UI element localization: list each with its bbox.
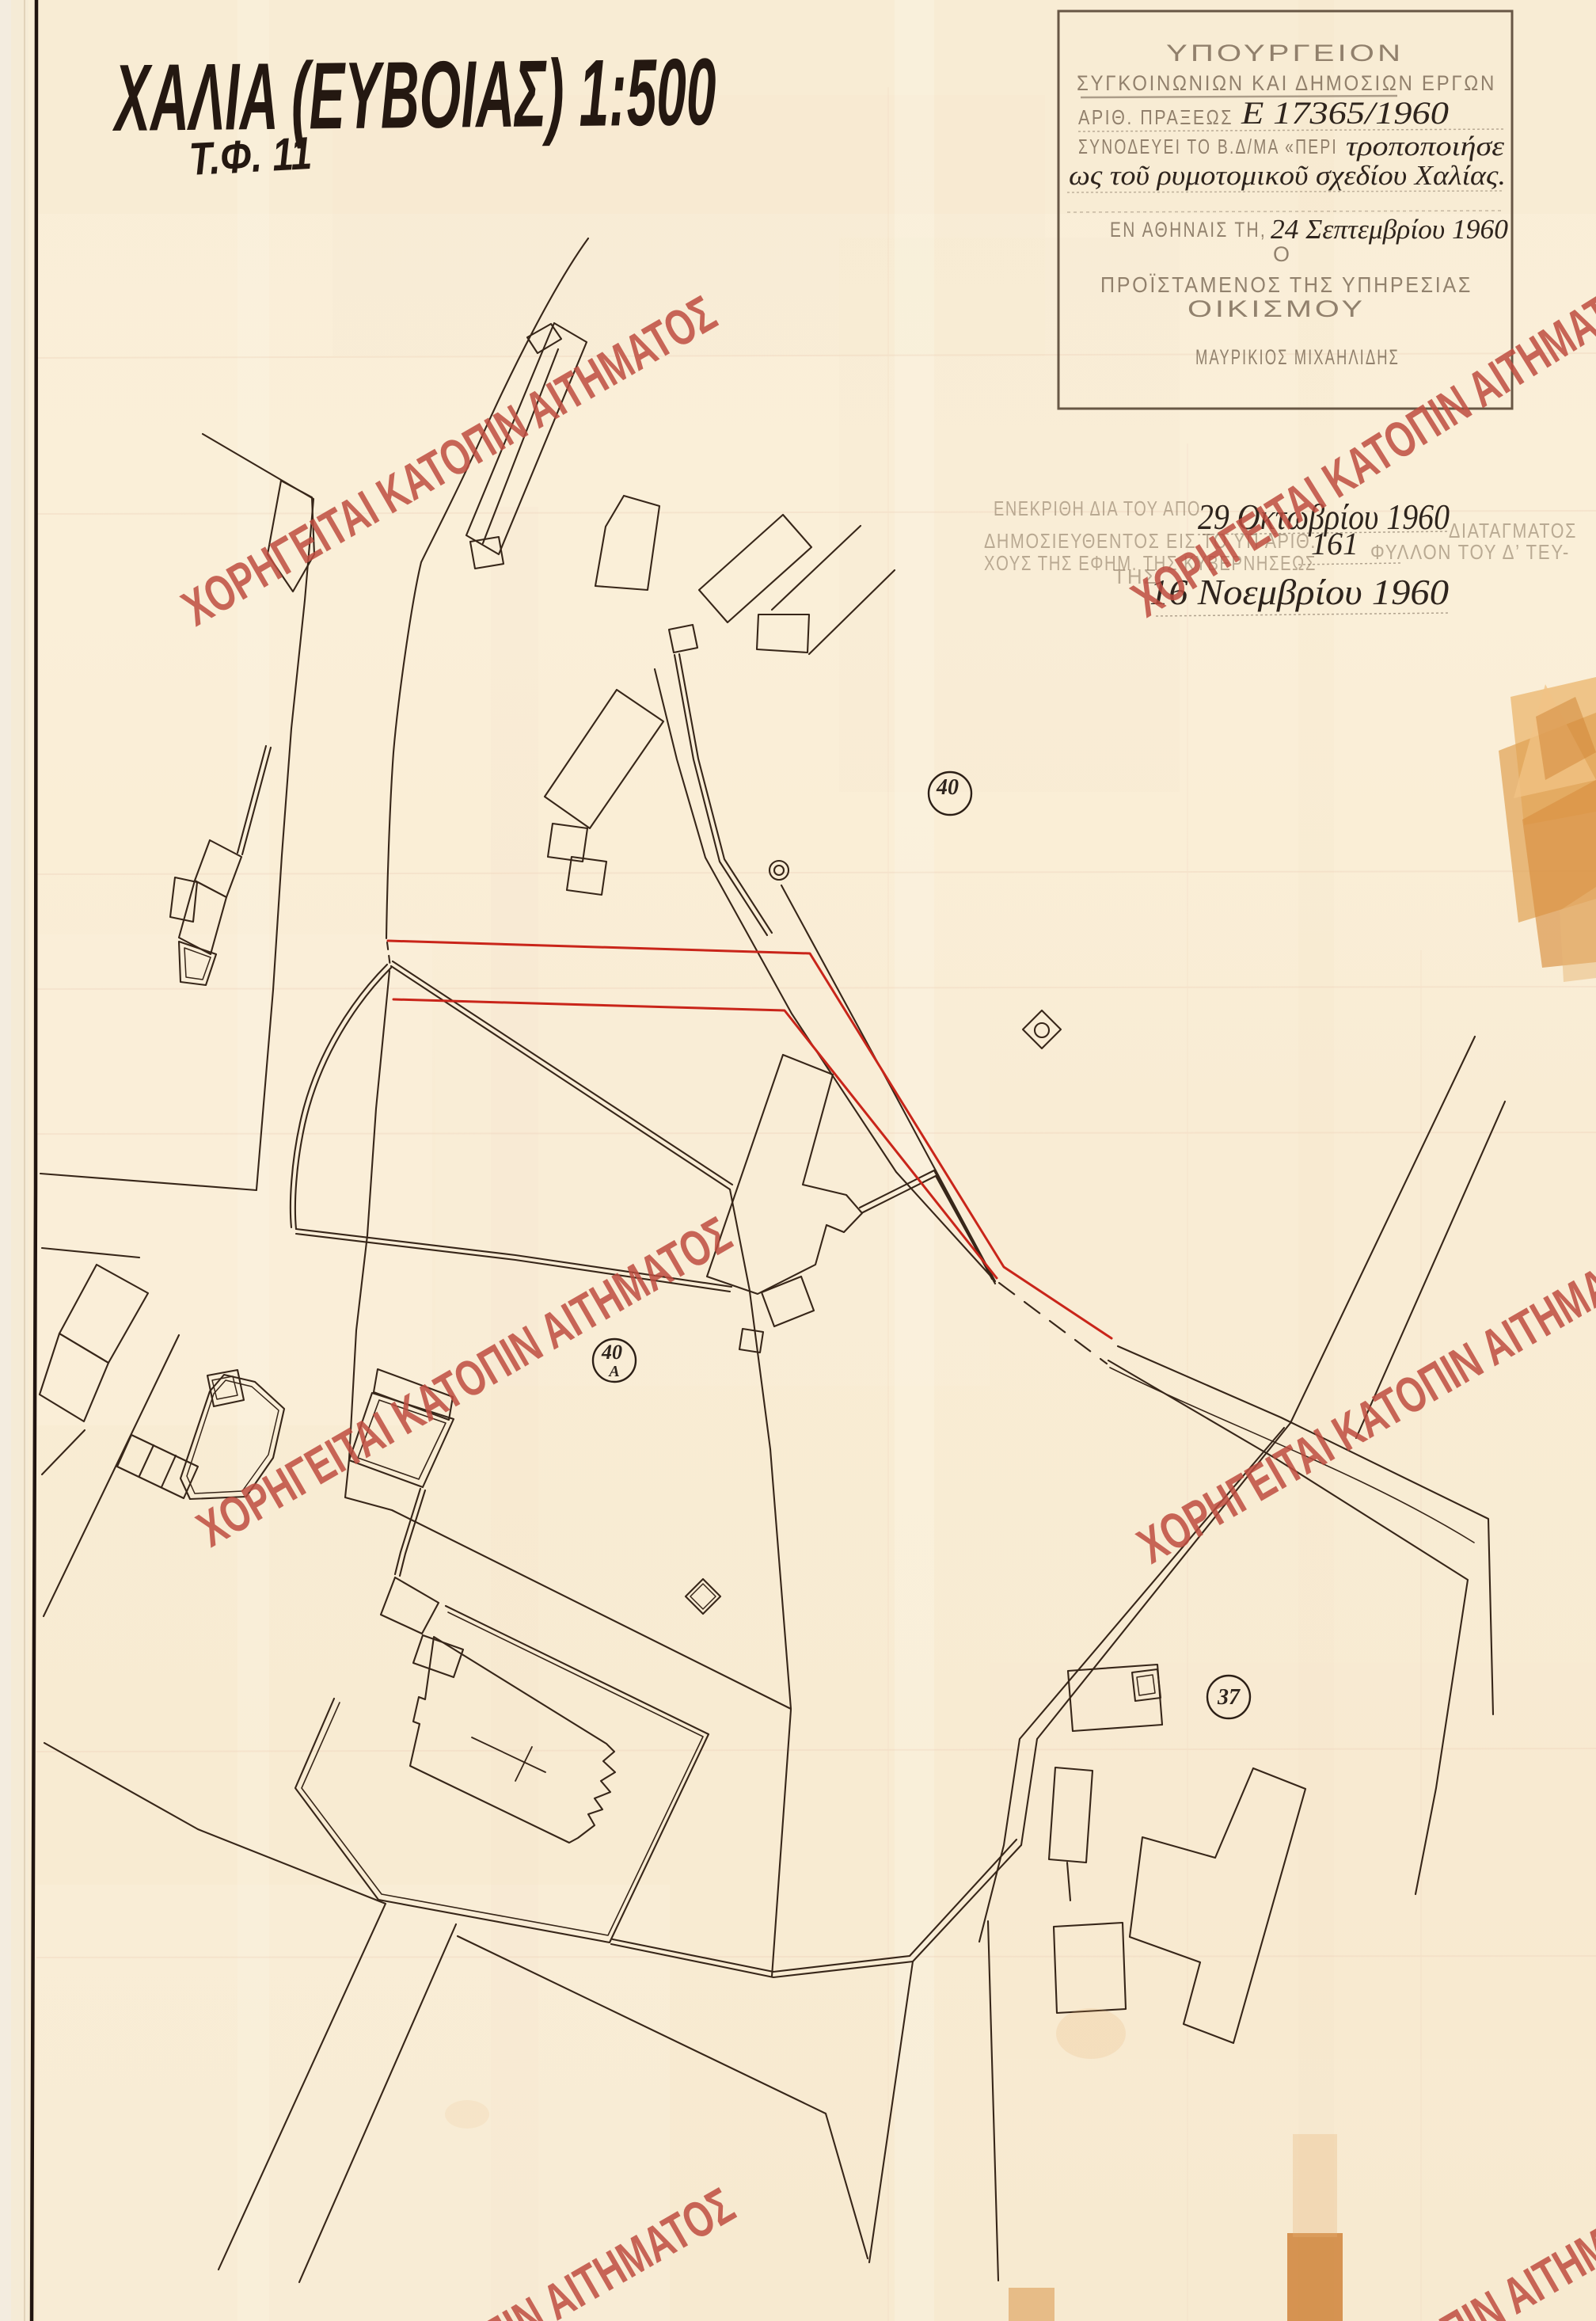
svg-text:ΕΝΕΚΡΙΘΗ ΔΙΑ ΤΟΥ ΑΠΟ: ΕΝΕΚΡΙΘΗ ΔΙΑ ΤΟΥ ΑΠΟ	[994, 497, 1201, 520]
svg-text:ΜΑΥΡΙΚΙΟΣ ΜΙΧΑΗΛΙΔΗΣ: ΜΑΥΡΙΚΙΟΣ ΜΙΧΑΗΛΙΔΗΣ	[1195, 345, 1400, 369]
svg-text:24 Σεπτεμβρίου 1960: 24 Σεπτεμβρίου 1960	[1271, 214, 1509, 245]
svg-text:161: 161	[1311, 526, 1358, 561]
svg-text:ΑΡΙΘ. ΠΡΑΞΕΩΣ: ΑΡΙΘ. ΠΡΑΞΕΩΣ	[1078, 105, 1233, 129]
svg-text:Α: Α	[607, 1363, 619, 1380]
svg-text:Τ.Φ. 11: Τ.Φ. 11	[188, 127, 313, 185]
svg-text:37: 37	[1217, 1685, 1241, 1710]
svg-text:Ε 17365/1960: Ε 17365/1960	[1241, 95, 1449, 131]
svg-text:ΥΠΟΥΡΓΕΙΟΝ: ΥΠΟΥΡΓΕΙΟΝ	[1166, 40, 1404, 67]
svg-text:40: 40	[601, 1341, 622, 1364]
svg-text:ΔΙΑΤΑΓΜΑΤΟΣ: ΔΙΑΤΑΓΜΑΤΟΣ	[1449, 519, 1577, 542]
svg-text:ΟΙΚΙΣΜΟΥ: ΟΙΚΙΣΜΟΥ	[1187, 296, 1366, 322]
svg-text:Ο: Ο	[1273, 242, 1292, 266]
svg-text:τροποποιήσε: τροποποιήσε	[1346, 131, 1504, 162]
svg-text:ΦΥΛΛΟΝ ΤΟΥ Δ’ ΤΕΥ-: ΦΥΛΛΟΝ ΤΟΥ Δ’ ΤΕΥ-	[1370, 540, 1570, 564]
svg-text:ΕΝ ΑΘΗΝΑΙΣ ΤΗ,: ΕΝ ΑΘΗΝΑΙΣ ΤΗ,	[1110, 218, 1267, 242]
svg-text:ΠΡΟΪΣΤΑΜΕΝΟΣ ΤΗΣ ΥΠΗΡΕΣΙΑΣ: ΠΡΟΪΣΤΑΜΕΝΟΣ ΤΗΣ ΥΠΗΡΕΣΙΑΣ	[1100, 272, 1472, 297]
svg-text:40: 40	[936, 775, 959, 800]
svg-text:ως τοῦ ρυμοτομικοῦ σχεδίου Χαλ: ως τοῦ ρυμοτομικοῦ σχεδίου Χαλίας.	[1069, 160, 1506, 191]
svg-text:ΣΥΝΟΔΕΥΕΙ ΤΟ Β.Δ/ΜΑ «ΠΕΡΙ: ΣΥΝΟΔΕΥΕΙ ΤΟ Β.Δ/ΜΑ «ΠΕΡΙ	[1078, 135, 1338, 158]
svg-text:ΣΥΓΚΟΙΝΩΝΙΩΝ ΚΑΙ ΔΗΜΟΣΙΩΝ ΕΡΓΩ: ΣΥΓΚΟΙΝΩΝΙΩΝ ΚΑΙ ΔΗΜΟΣΙΩΝ ΕΡΓΩΝ	[1077, 71, 1496, 95]
